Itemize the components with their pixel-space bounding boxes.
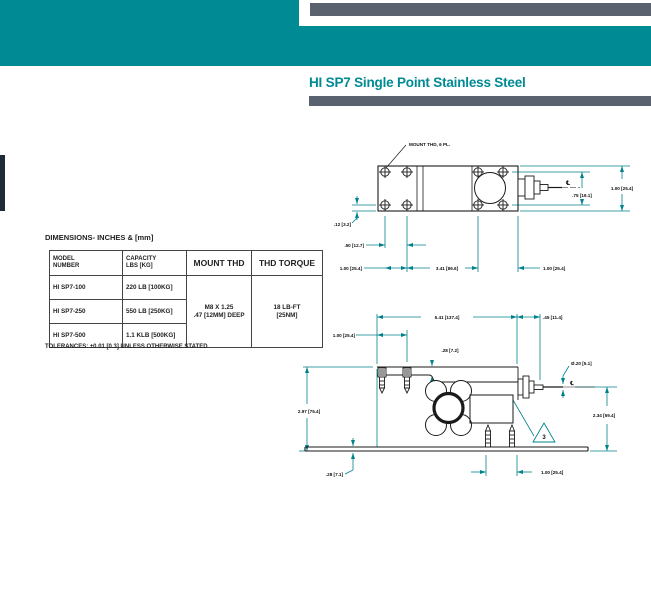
col-header-mount-thd: MOUNT THD (187, 251, 252, 276)
dim-left-end-label: 1.00 [25.4] (340, 266, 363, 271)
datasheet-page: HI SP7 Single Point Stainless Steel DIME… (0, 0, 651, 615)
model-cell: HI SP7-100 (50, 276, 123, 300)
col-header-model: MODEL NUMBER (50, 251, 123, 276)
bottom-mount-screws (486, 425, 515, 447)
dim-edge-offset-label: .12 [3.2] (334, 222, 352, 227)
connector-top-view (518, 176, 580, 199)
mount-thd-cell: M8 X 1.25 .47 [12MM] DEEP (187, 276, 252, 348)
dim-overall-label: 5.41 [137.4] (435, 315, 460, 320)
dim-height-label: 2.97 [75.4] (298, 409, 321, 414)
callout-leader (386, 145, 406, 168)
dim-hole-rows-label: .75 [19.1] (572, 193, 592, 198)
top-view-drawing: MOUNT THD, 6 PL. 1.00 [25.4] .75 [19.1] … (300, 130, 651, 290)
mount-thd-callout: MOUNT THD, 6 PL. (409, 142, 450, 147)
table-row: HI SP7-100 220 LB [100KG] M8 X 1.25 .47 … (50, 276, 323, 300)
dim-screw-offset-label: 1.00 [25.4] (333, 333, 356, 338)
capacity-cell: 550 LB [250KG] (123, 300, 187, 324)
side-view-drawing: 5.41 [137.4] .45 [11.4] 1.00 [25.4] .28 … (295, 300, 651, 490)
dim-foot-spacing-label: 1.00 [25.4] (541, 470, 564, 475)
top-view-body (378, 166, 518, 211)
spec-table: MODEL NUMBER CAPACITY LBS [KG] MOUNT THD… (49, 250, 323, 348)
dim-base-thk-label: .28 [7.1] (326, 472, 344, 477)
title-underline-bar (309, 96, 651, 106)
header-gray-bar (310, 3, 651, 16)
dim-width-label: 1.00 [25.4] (611, 186, 634, 191)
centerline-symbol: ℄ (569, 380, 574, 387)
page-edge-tab (0, 155, 5, 211)
connector-side-view (518, 376, 595, 398)
dim-col-spacing-label: .50 [12.7] (344, 243, 364, 248)
flexure-cutout (426, 381, 472, 436)
tolerance-note: TOLERANCES: ±0.01 [0.3] UNLESS OTHERWISE… (45, 344, 208, 350)
centerline-symbol: ℄ (565, 180, 570, 187)
dim-center-span-label: 3.41 [86.6] (436, 266, 459, 271)
label-plate (470, 395, 513, 423)
top-mount-screws (378, 368, 411, 393)
dim-right-end-label: 1.00 [25.4] (543, 266, 566, 271)
capacity-cell: 220 LB [100KG] (123, 276, 187, 300)
col-header-capacity: CAPACITY LBS [KG] (123, 251, 187, 276)
model-cell: HI SP7-250 (50, 300, 123, 324)
header-teal-block (0, 0, 299, 66)
dim-conn-offset-label: .45 [11.4] (543, 315, 563, 320)
page-title: HI SP7 Single Point Stainless Steel (309, 75, 526, 90)
dimensions-heading: DIMENSIONS- INCHES & [mm] (45, 233, 153, 242)
top-view-dimension-lines (352, 166, 630, 272)
dim-step-label: .28 [7.2] (441, 348, 459, 353)
dim-conn-height-label: 2.34 [59.4] (593, 413, 616, 418)
table-header-row: MODEL NUMBER CAPACITY LBS [KG] MOUNT THD… (50, 251, 323, 276)
header-teal-band (299, 26, 651, 66)
dim-pin-dia-label: Ø.20 [5.1] (571, 361, 592, 366)
